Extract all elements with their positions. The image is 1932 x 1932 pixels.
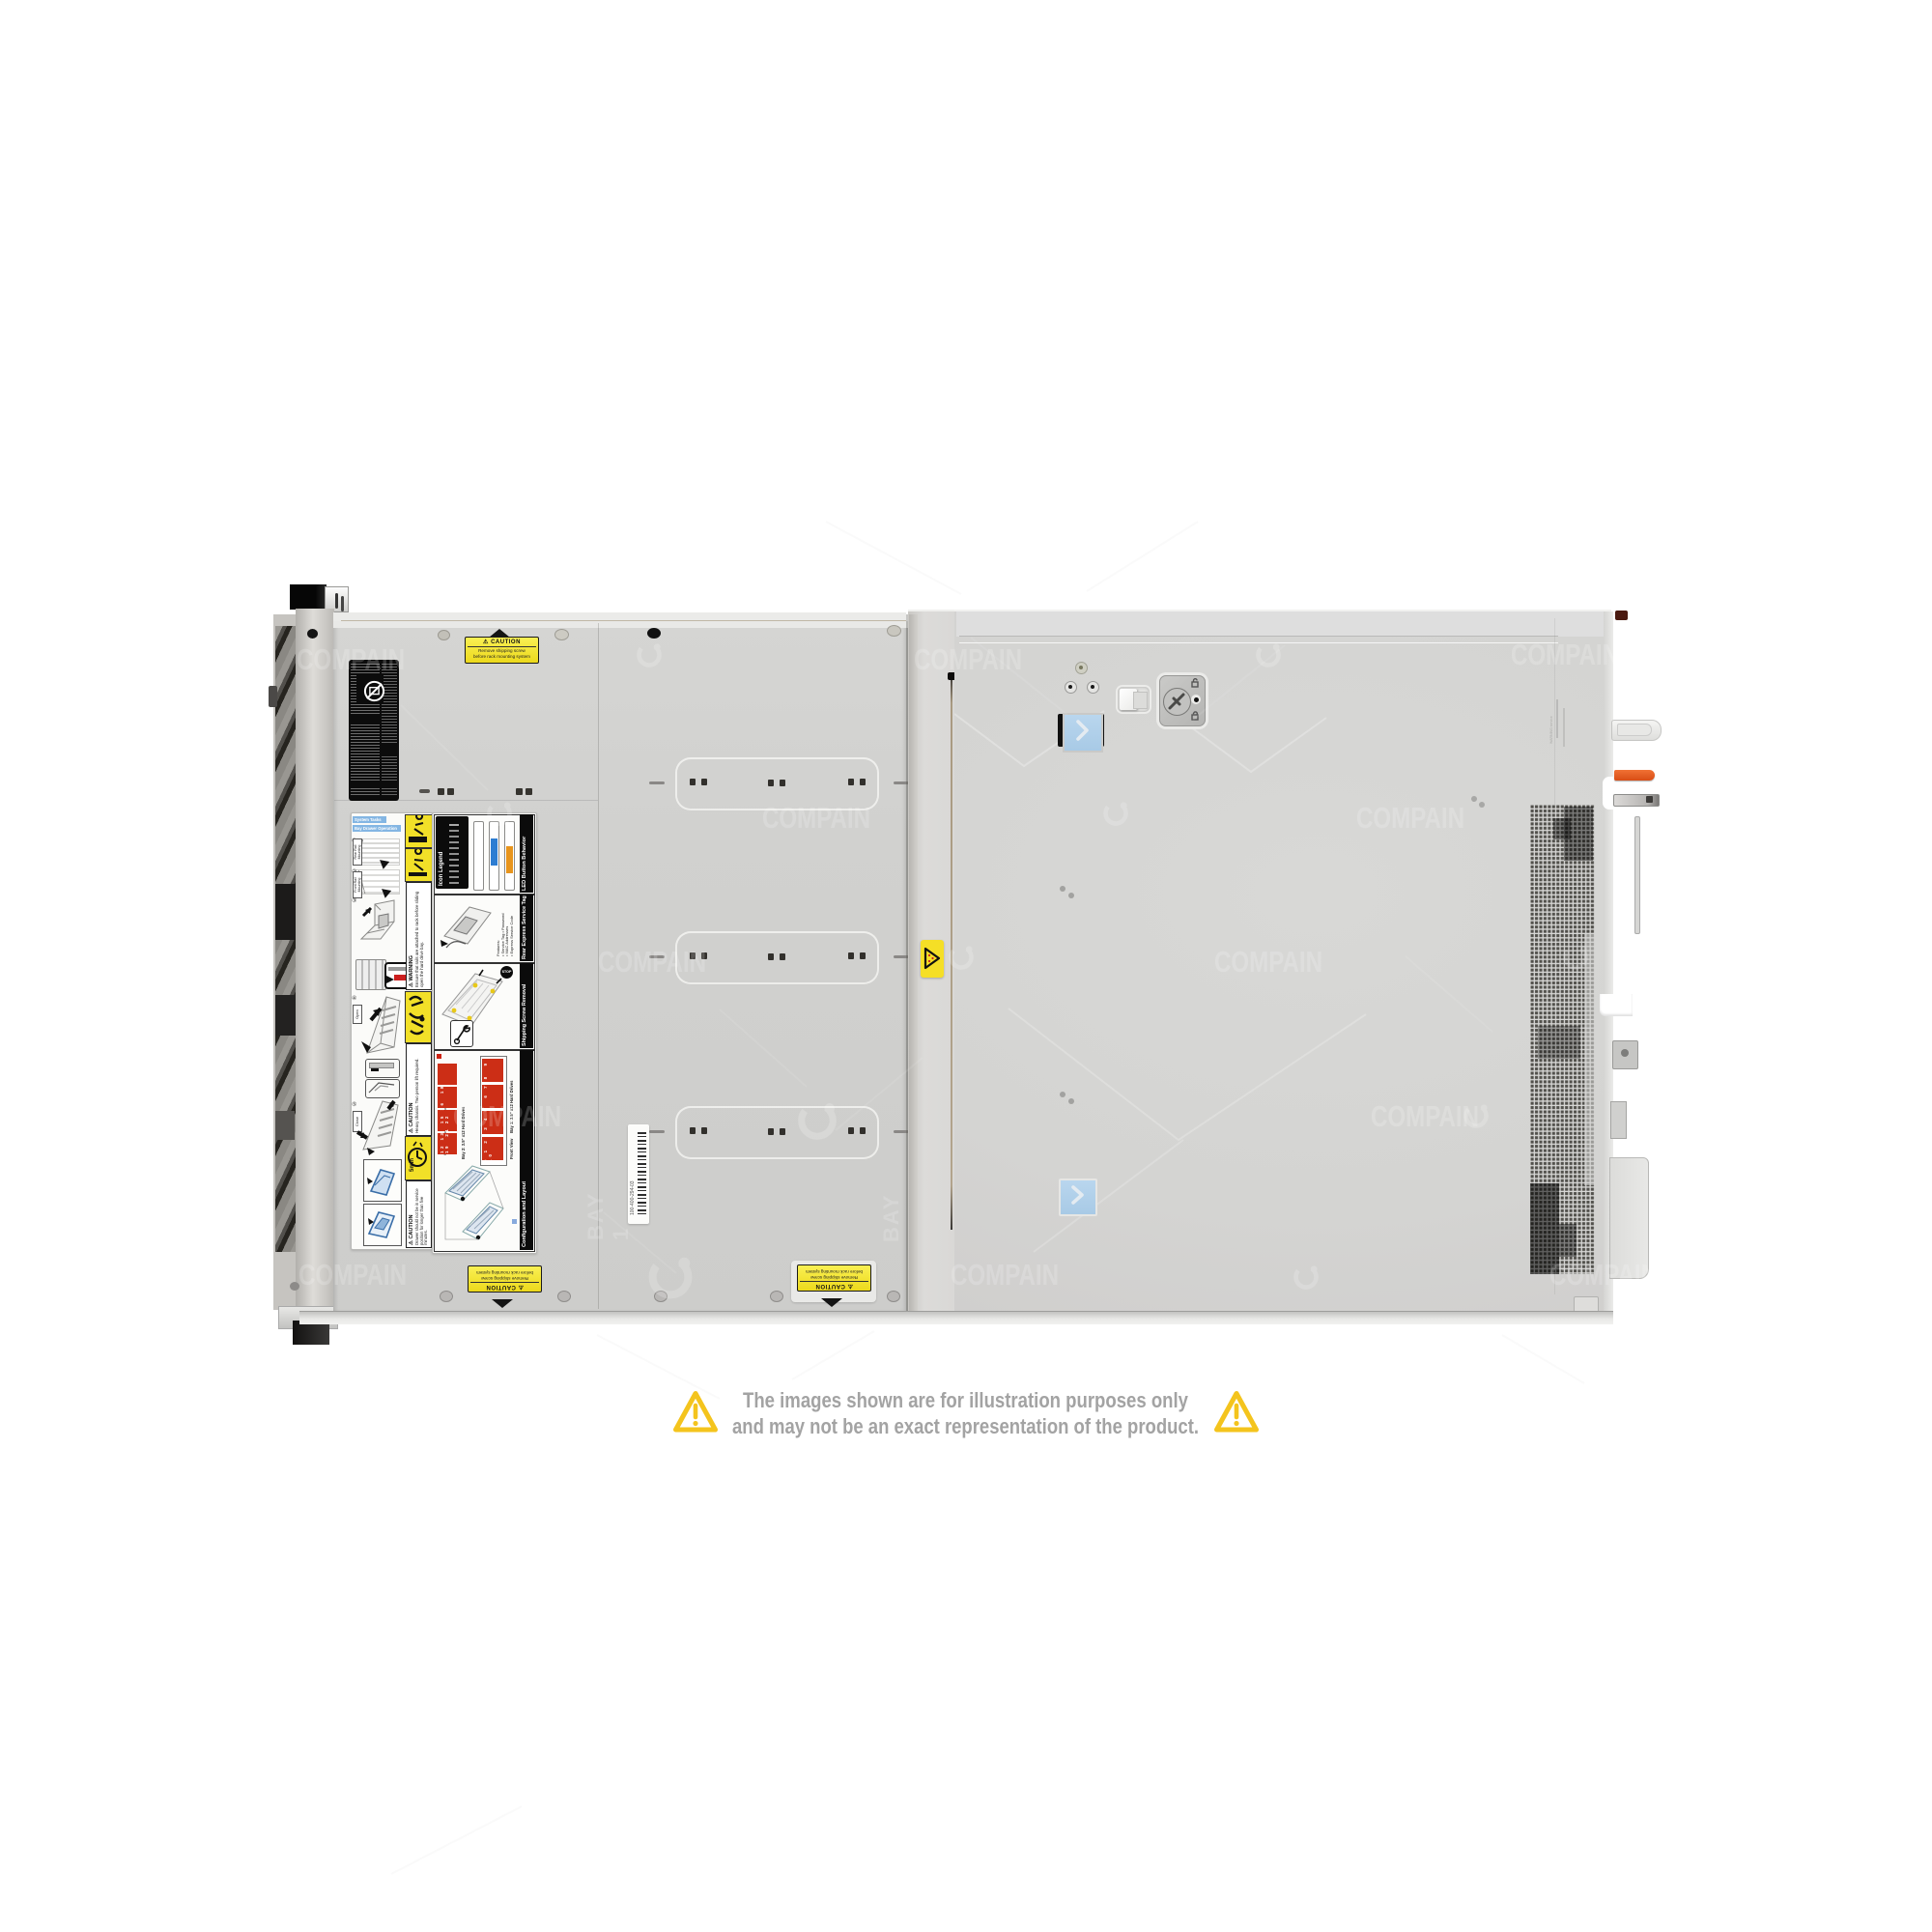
svg-text:and may not be an exact repres: and may not be an exact representation o… <box>732 1414 1199 1438</box>
svg-text:The images shown are for illus: The images shown are for illustration pu… <box>743 1388 1188 1412</box>
